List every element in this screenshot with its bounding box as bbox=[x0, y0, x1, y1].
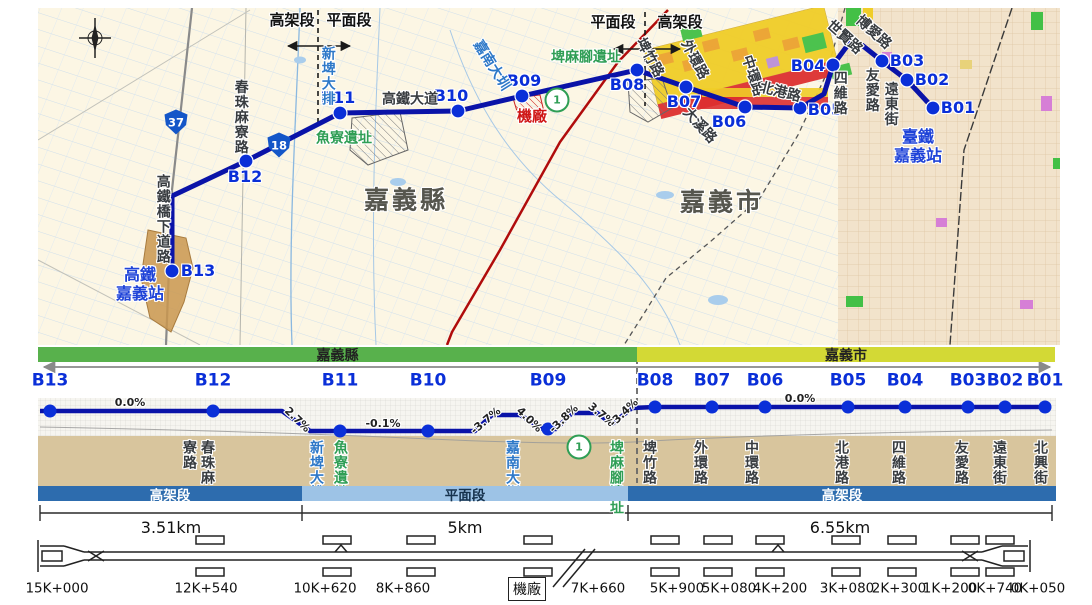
profile-station-label-b09: B09 bbox=[530, 372, 567, 391]
highway-shield-18: 18 bbox=[268, 133, 291, 158]
section-bar-1: 平面段 bbox=[302, 486, 628, 501]
map-section-label-elevated-w: 高架段 bbox=[269, 12, 314, 29]
map-section-label-atgrade-w: 平面段 bbox=[326, 12, 371, 29]
map-label-7: 機廠 bbox=[517, 108, 547, 125]
profile-station-label-b10: B10 bbox=[410, 372, 447, 391]
chainage-label-5: 5K+900 bbox=[650, 582, 705, 597]
map-label-8: 埤竹路 bbox=[632, 36, 665, 80]
county-area-label: 嘉義縣 bbox=[364, 186, 448, 214]
highway-shield-37: 37 bbox=[165, 110, 188, 135]
map-station-label-b03: B03 bbox=[890, 52, 924, 70]
map-label-5: 魚寮遺址 bbox=[316, 131, 372, 146]
map-station-label-b01: B01 bbox=[941, 99, 975, 117]
chainage-label-4: 7K+660 bbox=[571, 582, 626, 597]
map-label-6: 埤麻腳遺址 bbox=[551, 50, 621, 65]
profile-station-label-b02: B02 bbox=[987, 372, 1024, 391]
profile-station-label-b08: B08 bbox=[637, 372, 674, 391]
tra-label-line2: 嘉義站 bbox=[894, 146, 942, 165]
profile-road-label-4: 埤麻腳遺址 bbox=[609, 440, 623, 515]
county-bar-chiayi-county: 嘉義縣 bbox=[38, 347, 637, 362]
profile-road-label-12: 北興街 bbox=[1033, 440, 1047, 485]
profile-road-label-6: 外環路 bbox=[693, 440, 707, 485]
highway-shield-profile-1: 1 bbox=[567, 435, 592, 460]
chainage-label-7: 4K+200 bbox=[753, 582, 808, 597]
map-section-label-atgrade-e: 平面段 bbox=[590, 14, 635, 31]
chainage-label-9: 2K+300 bbox=[872, 582, 927, 597]
map-label-13: 友愛路 bbox=[863, 68, 878, 113]
map-station-label-b07: B07 bbox=[667, 93, 701, 111]
gradient-label-8: 0.0% bbox=[785, 393, 816, 405]
hsr-label-line2: 嘉義站 bbox=[116, 284, 164, 303]
gradient-label-5: -3.8% bbox=[547, 402, 581, 435]
map-station-label-b09: B09 bbox=[507, 72, 541, 90]
chainage-label-2: 10K+620 bbox=[293, 582, 356, 597]
profile-station-label-b13: B13 bbox=[32, 372, 69, 391]
chainage-label-0: 15K+000 bbox=[25, 582, 88, 597]
chainage-label-12: 0K+050 bbox=[1011, 582, 1066, 597]
map-label-9: 外環路 bbox=[677, 38, 710, 82]
profile-station-label-b03: B03 bbox=[950, 372, 987, 391]
chainage-label-3: 8K+860 bbox=[376, 582, 431, 597]
hsr-chiayi-station-label: 高鐵 嘉義站 bbox=[116, 265, 164, 303]
map-label-4: 嘉南大圳 bbox=[470, 38, 513, 94]
gradient-label-3: -3.7% bbox=[469, 405, 504, 437]
profile-station-label-b01: B01 bbox=[1027, 372, 1064, 391]
distance-label-1: 5km bbox=[447, 519, 482, 537]
map-label-11: 北港路 bbox=[758, 80, 802, 105]
map-station-label-b13: B13 bbox=[181, 262, 215, 280]
map-section-label-elevated-e: 高架段 bbox=[657, 14, 702, 31]
tra-chiayi-station-label: 臺鐵 嘉義站 bbox=[894, 127, 942, 165]
profile-station-label-b11: B11 bbox=[322, 372, 359, 391]
map-label-1: 春珠麻寮路 bbox=[232, 80, 247, 155]
map-label-0: 高鐵大道 bbox=[382, 92, 438, 107]
gradient-label-4: 4.0% bbox=[514, 405, 544, 435]
map-station-label-b08: B08 bbox=[610, 76, 644, 94]
highway-shield-1: 1 bbox=[545, 88, 570, 113]
section-bar-2: 高架段 bbox=[628, 486, 1056, 501]
profile-station-label-b07: B07 bbox=[694, 372, 731, 391]
gradient-label-2: -0.1% bbox=[365, 418, 400, 430]
chainage-label-6: 5K+080 bbox=[702, 582, 757, 597]
map-station-label-b10: B10 bbox=[434, 87, 468, 105]
profile-station-label-b12: B12 bbox=[195, 372, 232, 391]
section-bar-0: 高架段 bbox=[38, 486, 302, 501]
profile-road-label-7: 中環路 bbox=[744, 440, 758, 485]
profile-road-label-9: 四維路 bbox=[891, 440, 905, 485]
profile-station-label-b06: B06 bbox=[747, 372, 784, 391]
map-label-3: 新埤大排 bbox=[319, 46, 334, 106]
county-bar-chiayi-city: 嘉義市 bbox=[637, 347, 1055, 362]
depot-label: 機廠 bbox=[508, 577, 546, 601]
gradient-label-7: -3.4% bbox=[607, 396, 641, 429]
profile-road-label-0-0: 春珠麻 bbox=[200, 440, 214, 485]
gradient-label-0: 0.0% bbox=[115, 397, 146, 409]
distance-label-2: 6.55km bbox=[810, 519, 870, 537]
map-station-label-b12: B12 bbox=[228, 168, 262, 186]
tra-label-line1: 臺鐵 bbox=[902, 127, 934, 146]
map-label-2: 高鐵橋下道路 bbox=[154, 174, 169, 264]
map-station-label-b06: B06 bbox=[712, 113, 746, 131]
chainage-label-8: 3K+080 bbox=[820, 582, 875, 597]
label-layer: 高架段 平面段 平面段 高架段 嘉義縣 嘉義市 高鐵 嘉義站 臺鐵 嘉義站 嘉義… bbox=[0, 0, 1092, 605]
chainage-label-1: 12K+540 bbox=[174, 582, 237, 597]
profile-station-label-b05: B05 bbox=[830, 372, 867, 391]
profile-road-label-5: 埤竹路 bbox=[642, 440, 656, 485]
profile-road-label-10: 友愛路 bbox=[954, 440, 968, 485]
profile-road-label-11: 遠東街 bbox=[992, 440, 1006, 485]
map-label-14: 遠東街 bbox=[882, 82, 897, 127]
profile-road-label-0-1: 寮路 bbox=[182, 440, 196, 470]
profile-road-label-8: 北港路 bbox=[834, 440, 848, 485]
hsr-label-line1: 高鐵 bbox=[124, 265, 156, 284]
map-station-label-b02: B02 bbox=[915, 71, 949, 89]
profile-station-label-b04: B04 bbox=[887, 372, 924, 391]
alignment-figure: 高架段 平面段 平面段 高架段 嘉義縣 嘉義市 高鐵 嘉義站 臺鐵 嘉義站 嘉義… bbox=[0, 0, 1092, 605]
city-area-label: 嘉義市 bbox=[680, 188, 764, 216]
map-label-12: 四維路 bbox=[831, 71, 846, 116]
map-station-label-b04: B04 bbox=[791, 57, 825, 75]
gradient-label-1: 2.7% bbox=[282, 405, 312, 435]
distance-label-0: 3.51km bbox=[141, 519, 201, 537]
